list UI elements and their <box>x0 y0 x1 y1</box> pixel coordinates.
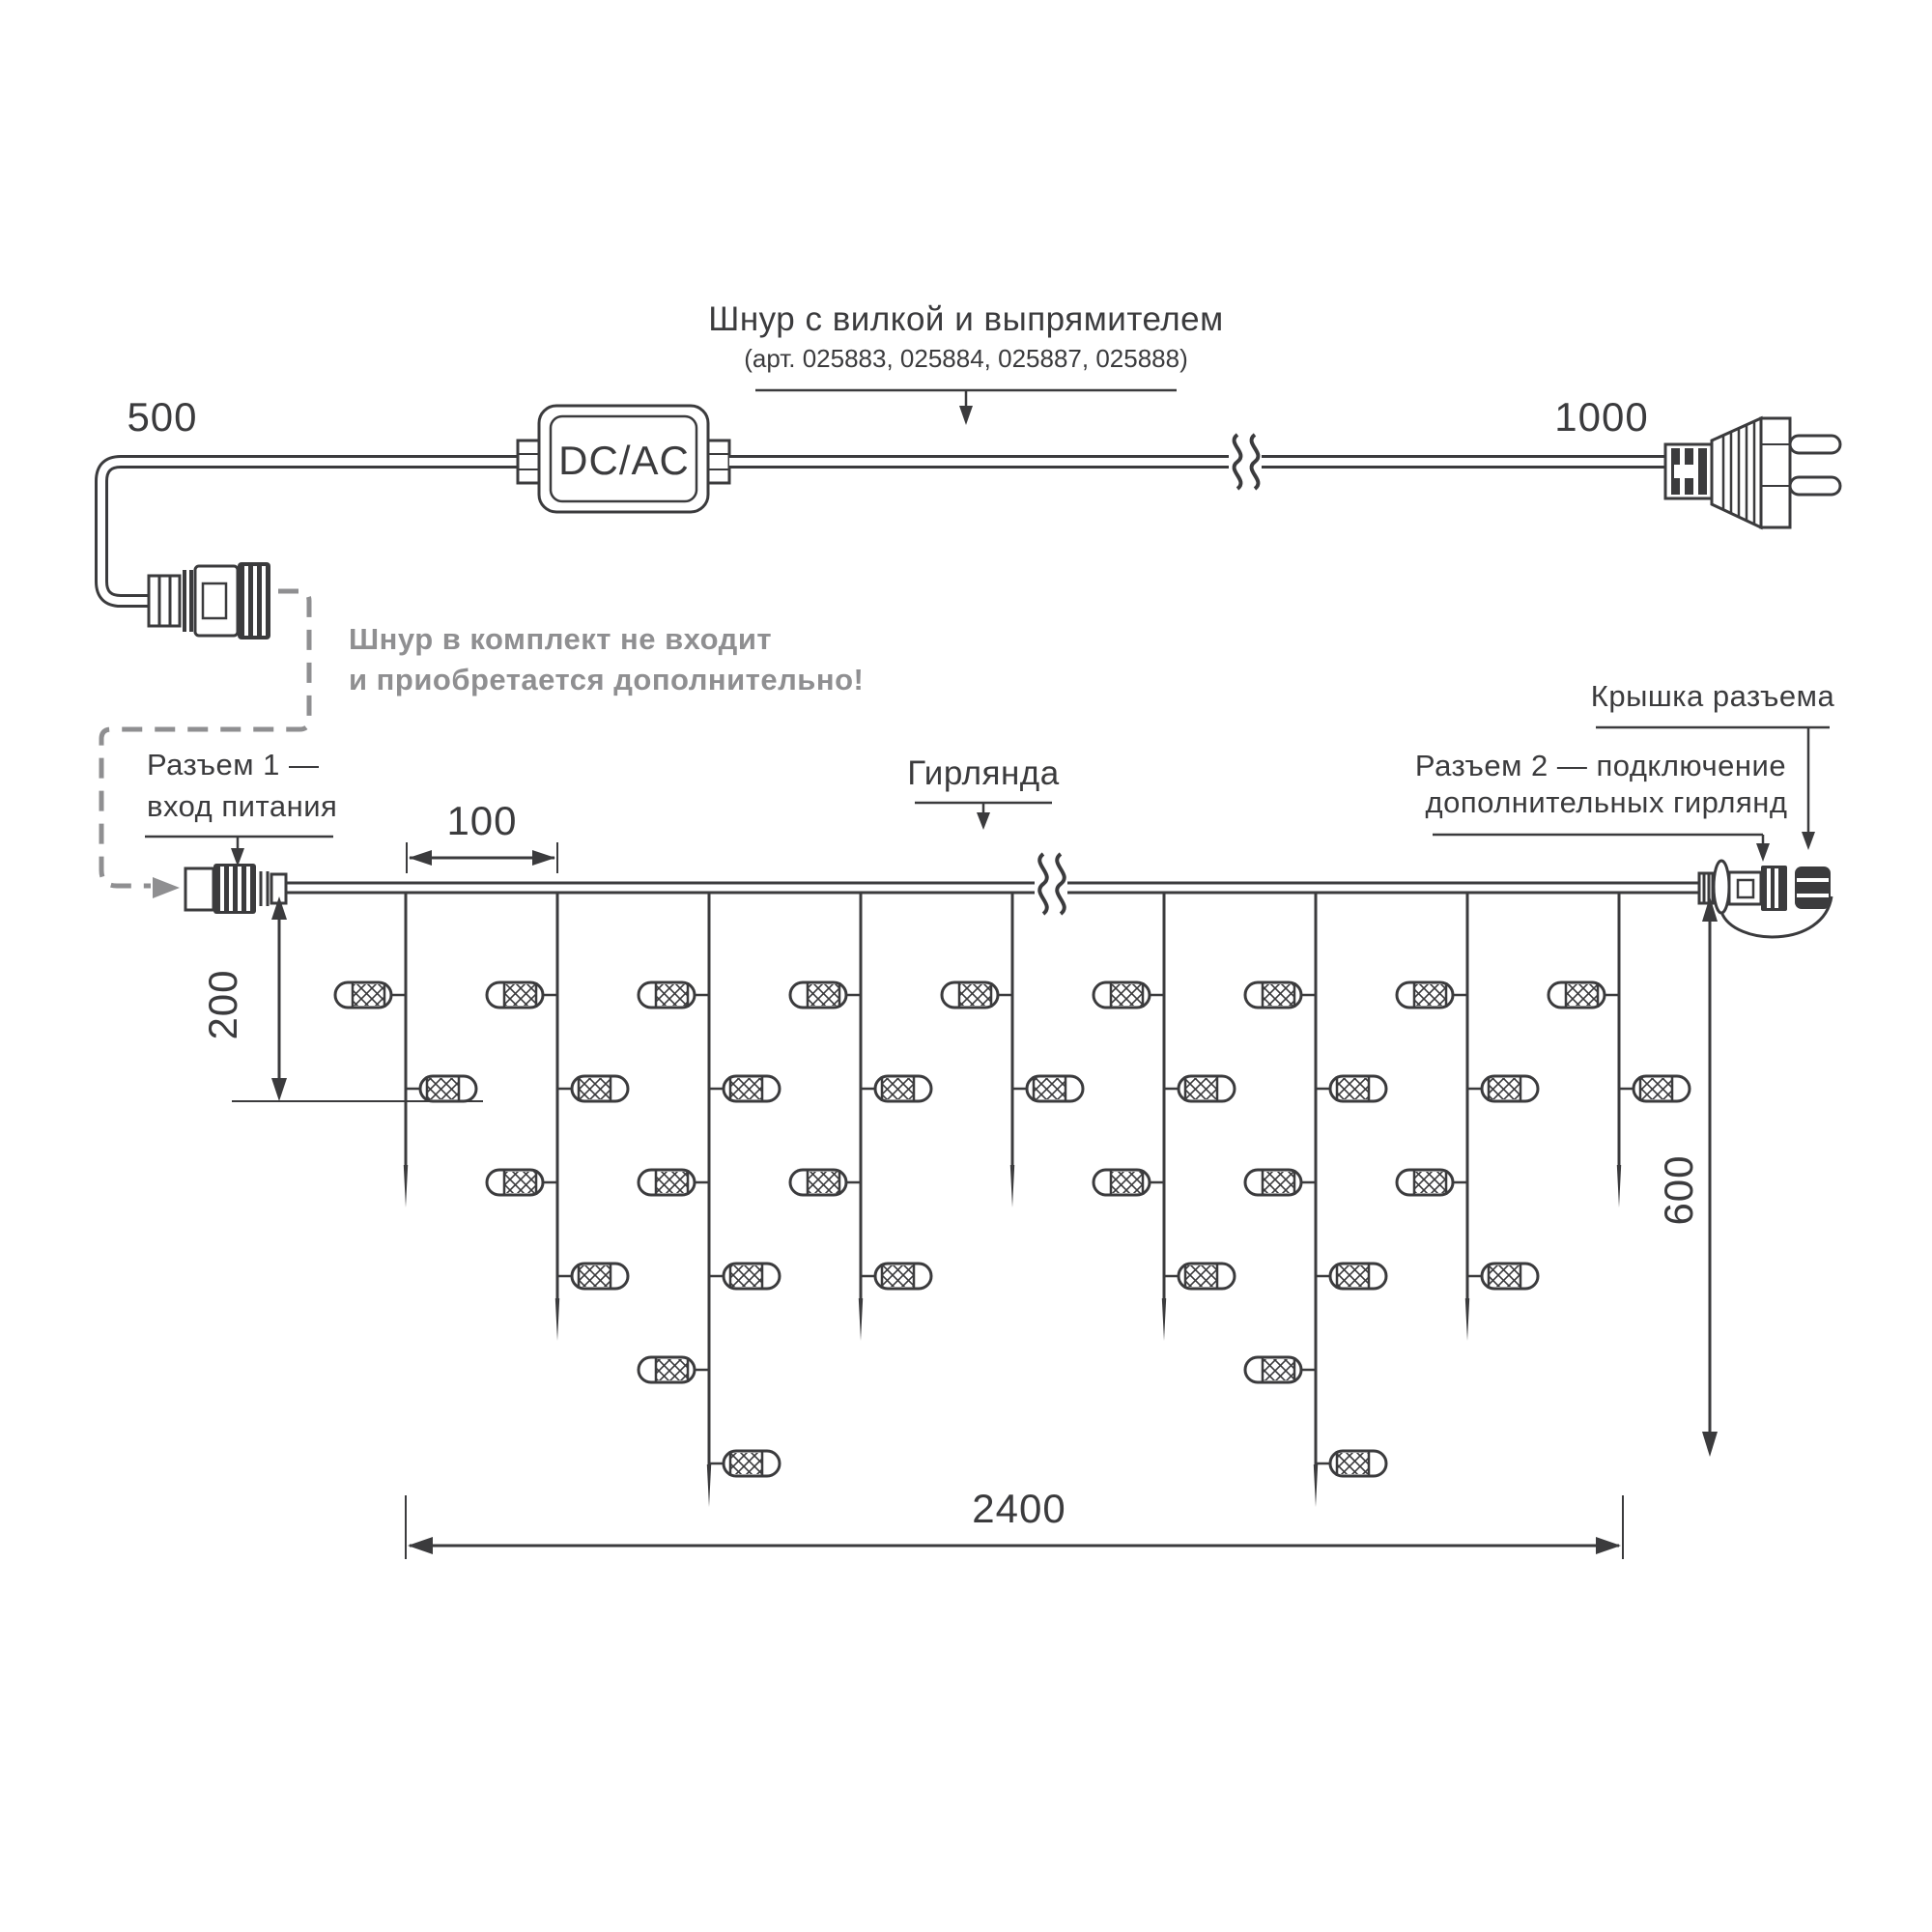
cord-subtitle: (арт. 025883, 025884, 025887, 025888) <box>744 344 1188 373</box>
bulb-lattice <box>1566 984 1598 1006</box>
connector2-cap <box>1795 867 1831 909</box>
bulb-lattice <box>1185 1078 1217 1099</box>
garland-drop-3 <box>639 892 780 1507</box>
converter-label: DC/AC <box>558 438 690 483</box>
cord-output-connector <box>149 562 270 639</box>
drop-tip <box>1162 1298 1166 1341</box>
connector1-label-line2: вход питания <box>147 789 337 823</box>
bulb-lattice <box>579 1078 611 1099</box>
bulb-lattice <box>656 984 688 1006</box>
garland-drop-6 <box>1094 892 1235 1341</box>
garland-connector1 <box>185 864 286 914</box>
bulb-lattice <box>656 1172 688 1193</box>
bulb-lattice <box>504 984 536 1006</box>
bulb-lattice <box>1111 984 1143 1006</box>
garland-drop-1 <box>335 892 476 1207</box>
connector1-plug-tip <box>185 868 213 910</box>
plug-strain-slot <box>1674 465 1697 478</box>
garland-drop-4 <box>790 892 931 1341</box>
plug-prong-top <box>1790 436 1840 453</box>
bulb-lattice <box>1111 1172 1143 1193</box>
dim-2400-label: 2400 <box>972 1486 1065 1531</box>
garland-label: Гирлянда <box>907 754 1059 792</box>
note-line2: и приобретается дополнительно! <box>349 663 864 696</box>
converter-right-tab <box>708 440 729 483</box>
bulb-lattice <box>1263 984 1294 1006</box>
dim-600-arrow-down <box>1702 1432 1718 1457</box>
garland-connector2 <box>1699 861 1832 937</box>
bulb-lattice <box>959 984 991 1006</box>
connector1-label-line1: Разъем 1 — <box>147 748 319 781</box>
bulb-lattice <box>579 1265 611 1287</box>
bulb-lattice <box>1263 1172 1294 1193</box>
bulb-lattice <box>730 1078 762 1099</box>
bulb-lattice <box>1640 1078 1672 1099</box>
drop-tip <box>404 1165 408 1207</box>
drop-tip <box>555 1298 559 1341</box>
garland-drop-2 <box>487 892 628 1341</box>
connector2-ring <box>1714 861 1729 913</box>
converter-left-tab <box>518 440 539 483</box>
connector2-neck <box>1699 873 1713 903</box>
dim-1000-label: 1000 <box>1554 394 1648 440</box>
garland-drop-5 <box>942 892 1083 1207</box>
dim-2400-arrow-right <box>1596 1537 1621 1554</box>
plug-face <box>1761 418 1790 527</box>
bulb-lattice <box>1185 1265 1217 1287</box>
garland-arrowhead <box>977 812 990 830</box>
dim-200-arrow-down <box>271 1078 287 1101</box>
drop-tip <box>1314 1464 1318 1507</box>
bulb-lattice <box>730 1453 762 1474</box>
power-plug <box>1665 413 1840 531</box>
bulb-lattice <box>1263 1359 1294 1380</box>
cable-break-symbol <box>1229 435 1262 489</box>
wire-break-symbol <box>1035 854 1067 914</box>
dim-2400-arrow-left <box>408 1537 433 1554</box>
plug-prong-bottom <box>1790 477 1840 495</box>
dim-100-arrow-right <box>532 850 555 866</box>
cap-arrowhead <box>1802 832 1815 850</box>
bulb-lattice <box>882 1078 914 1099</box>
bulb-lattice <box>353 984 384 1006</box>
plug-strain-rib <box>1698 448 1707 495</box>
connector2-ribbed-nut <box>1761 866 1787 911</box>
cord-title: Шнур с вилкой и выпрямителем <box>708 300 1223 338</box>
connector2-label-line2: дополнительных гирлянд <box>1426 785 1788 819</box>
bulb-lattice <box>1414 1172 1446 1193</box>
cord-title-arrowhead <box>959 406 973 425</box>
dc-ac-converter: DC/AC <box>518 406 729 512</box>
connector2-label-line1: Разъем 2 — подключение <box>1415 749 1786 782</box>
bulb-lattice <box>1337 1078 1369 1099</box>
connector2-arrowhead <box>1756 843 1770 862</box>
drop-tip <box>707 1464 711 1507</box>
bulb-lattice <box>1414 984 1446 1006</box>
bulb-lattice <box>656 1359 688 1380</box>
bulb-lattice <box>1034 1078 1065 1099</box>
connector-body <box>195 566 238 636</box>
dim-500-label: 500 <box>127 394 197 440</box>
bulb-lattice <box>882 1265 914 1287</box>
connector-strain-relief <box>149 576 180 626</box>
connector2-body <box>1729 872 1761 904</box>
drop-tip <box>1465 1298 1469 1341</box>
bulb-lattice <box>808 1172 839 1193</box>
bulb-lattice <box>730 1265 762 1287</box>
drop-tip <box>859 1298 863 1341</box>
drop-tip <box>1617 1165 1621 1207</box>
diagram-canvas: Шнур с вилкой и выпрямителем (арт. 02588… <box>0 0 1932 1932</box>
garland-schematic: Шнур с вилкой и выпрямителем (арт. 02588… <box>0 0 1932 1932</box>
drop-tip <box>1010 1165 1014 1207</box>
dim-200-label: 200 <box>200 969 245 1039</box>
bulb-lattice <box>808 984 839 1006</box>
garland-section: Разъем 1 — вход питания Гирлянда Разъем … <box>145 679 1834 1559</box>
bulb-lattice <box>1337 1265 1369 1287</box>
garland-drop-7 <box>1245 892 1386 1507</box>
dim-100-arrow-left <box>409 850 432 866</box>
note-line1: Шнур в комплект не входит <box>349 622 772 656</box>
bulb-lattice <box>504 1172 536 1193</box>
cap-label: Крышка разъема <box>1591 679 1835 713</box>
bulb-lattice <box>1489 1078 1520 1099</box>
bulb-lattice <box>1337 1453 1369 1474</box>
dim-600-label: 600 <box>1656 1154 1701 1225</box>
dim-100-label: 100 <box>446 798 517 843</box>
icicle-drops <box>335 892 1690 1507</box>
garland-drop-8 <box>1397 892 1538 1341</box>
bulb-lattice <box>1489 1265 1520 1287</box>
bulb-lattice <box>427 1078 459 1099</box>
dashed-path-arrowhead <box>153 877 180 898</box>
